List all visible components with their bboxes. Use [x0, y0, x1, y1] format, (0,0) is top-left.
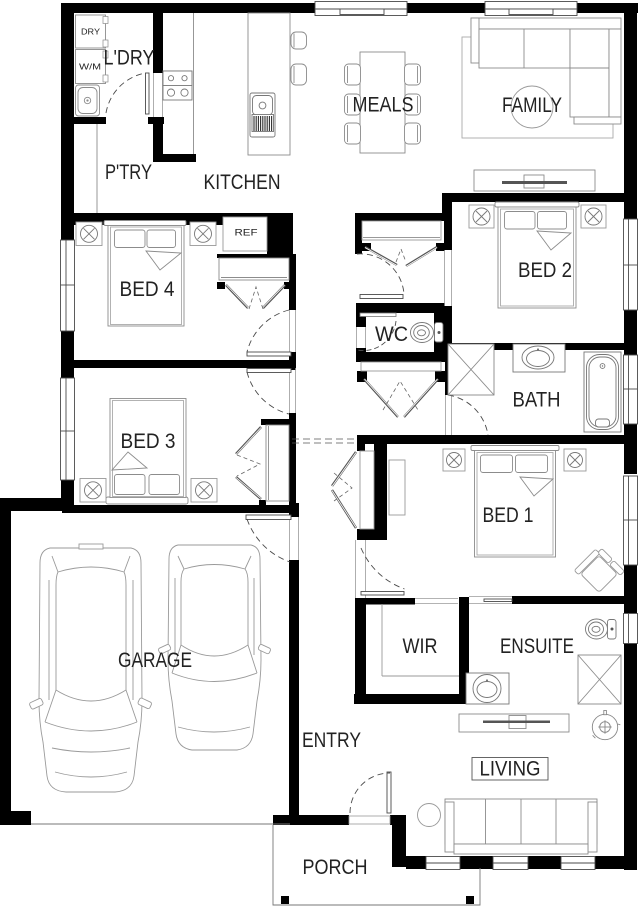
svg-text:GARAGE: GARAGE	[118, 649, 192, 672]
svg-text:LIVING: LIVING	[480, 758, 541, 781]
svg-text:P'TRY: P'TRY	[105, 161, 152, 184]
svg-text:BED 3: BED 3	[121, 430, 176, 453]
svg-text:PORCH: PORCH	[303, 856, 368, 879]
svg-text:W/M: W/M	[79, 62, 101, 72]
svg-text:REF: REF	[235, 228, 258, 239]
svg-text:L'DRY: L'DRY	[104, 47, 155, 70]
svg-text:WC: WC	[375, 323, 408, 346]
svg-text:BED 2: BED 2	[518, 259, 572, 282]
svg-text:BATH: BATH	[513, 389, 561, 412]
svg-text:WIR: WIR	[403, 635, 438, 658]
svg-text:DRY: DRY	[81, 27, 100, 37]
svg-text:BED 1: BED 1	[483, 504, 534, 527]
svg-text:BED 4: BED 4	[120, 278, 175, 301]
svg-text:ENTRY: ENTRY	[302, 729, 361, 752]
svg-text:ENSUITE: ENSUITE	[500, 635, 574, 658]
svg-text:KITCHEN: KITCHEN	[204, 171, 281, 194]
svg-text:FAMILY: FAMILY	[502, 94, 562, 117]
svg-text:MEALS: MEALS	[353, 94, 414, 117]
